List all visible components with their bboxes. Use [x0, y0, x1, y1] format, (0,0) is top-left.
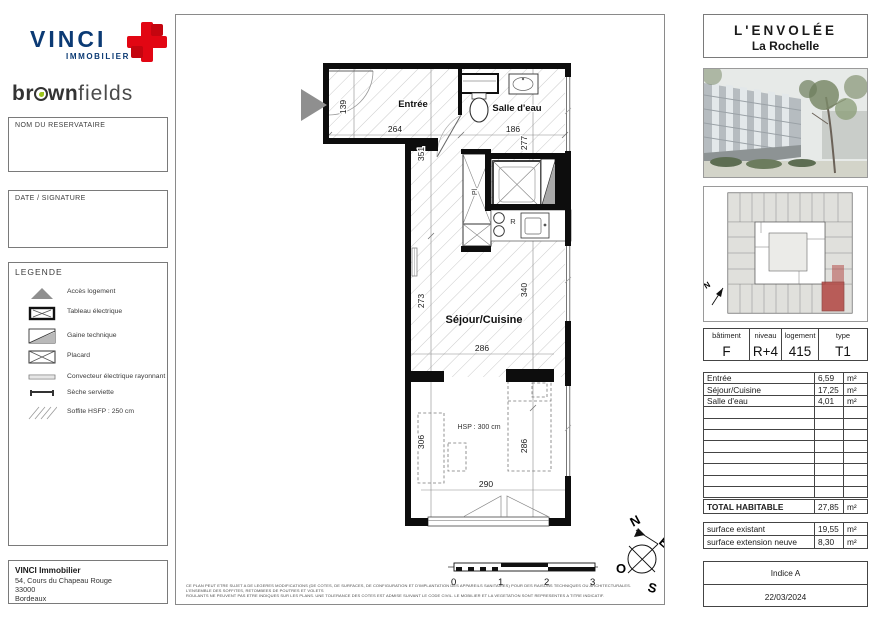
room-label-entree: Entrée: [398, 99, 428, 110]
dim-351: 351: [416, 147, 426, 161]
area-row-empty: [704, 430, 867, 441]
area-row-empty: [704, 476, 867, 487]
bed-outline: [508, 379, 551, 471]
surface-label: surface existant: [704, 523, 815, 535]
date-signature-label: DATE / SIGNATURE: [9, 191, 167, 202]
header-logement: logement: [782, 329, 819, 342]
reservataire-field[interactable]: NOM DU RESERVATAIRE: [8, 117, 168, 172]
area-row-empty: [704, 441, 867, 452]
header-type: type: [819, 329, 867, 342]
company-city: Bordeaux: [9, 594, 167, 603]
total-label: TOTAL HABITABLE: [704, 500, 815, 513]
area-label: Séjour/Cuisine: [704, 384, 815, 394]
vinci-cross-icon: [127, 20, 167, 64]
dim-264: 264: [388, 124, 402, 134]
area-value: 17,25: [815, 384, 844, 394]
pillow-outline: [532, 383, 547, 397]
header-batiment: bâtiment: [704, 329, 750, 342]
area-row-empty: [704, 453, 867, 464]
vinci-immobilier-logo: VINCI IMMOBILIER: [24, 14, 164, 64]
brownfields-logo: brwnfields: [12, 82, 168, 110]
area-unit: m²: [844, 384, 867, 394]
appliance-box: [463, 224, 491, 246]
brownfields-text-fields: fields: [78, 82, 133, 105]
chair-outline: [448, 443, 466, 471]
company-name: VINCI Immobilier: [9, 561, 167, 576]
bay-window: [428, 496, 549, 526]
legend-item-tableau: Tableau électrique: [23, 305, 169, 323]
dim-273: 273: [416, 294, 426, 308]
area-unit: m²: [844, 396, 867, 406]
building-render-image: [704, 69, 867, 177]
revision-indice: Indice A: [704, 562, 867, 585]
legend-label: Placard: [67, 352, 90, 359]
area-label: Salle d'eau: [704, 396, 815, 406]
surfaces-table: surface existant 19,55 m² surface extens…: [703, 522, 868, 549]
project-city: La Rochelle: [704, 39, 867, 53]
acces-logement-icon: [27, 285, 57, 301]
area-unit: m²: [844, 373, 867, 383]
room-areas-table: Entrée 6,59 m² Séjour/Cuisine 17,25 m² S…: [703, 372, 868, 498]
surface-value: 8,30: [815, 536, 844, 548]
annotation-placard: Pl: [472, 188, 479, 195]
gaine-technique-icon: [27, 327, 57, 345]
placard-icon: [27, 349, 57, 365]
hob-burner: [494, 213, 505, 224]
value-niveau: R+4: [750, 342, 782, 361]
area-row-entree: Entrée 6,59 m²: [704, 373, 867, 384]
legend-item-soffite: Soffite HSFP : 250 cm: [23, 405, 169, 423]
legend-label: Soffite HSFP : 250 cm: [67, 408, 134, 415]
room-label-salle-deau: Salle d'eau: [492, 103, 541, 114]
area-row-empty: [704, 419, 867, 430]
area-value: 4,01: [815, 396, 844, 406]
value-batiment: F: [704, 342, 750, 361]
plan-sheet-page: VINCI IMMOBILIER brwnfields NOM DU RESER…: [0, 0, 876, 620]
project-title-block: L'ENVOLÉE La Rochelle: [703, 14, 868, 58]
disclaimer-line1: CE PLAN PEUT ETRE SUJET A DE LEGERES MOD…: [186, 583, 658, 593]
dim-286-sejour: 286: [475, 343, 489, 353]
highlighted-unit-extension: [832, 265, 844, 282]
area-row-sejour: Séjour/Cuisine 17,25 m²: [704, 384, 867, 395]
revision-block: Indice A 22/03/2024: [703, 561, 868, 607]
vinci-logo-subtext: IMMOBILIER: [66, 52, 130, 61]
dim-186: 186: [506, 124, 520, 134]
kitchen-counter: [491, 210, 571, 241]
right-wall-windows: [565, 77, 571, 476]
brownfields-text-wn: wn: [48, 82, 78, 105]
convecteur-icon: [27, 371, 57, 383]
surface-unit: m²: [844, 523, 867, 535]
legend-panel: LEGENDE Accès logement Tableau électriqu…: [8, 262, 168, 546]
legend-item-placard: Placard: [23, 349, 169, 367]
disclaimer-line2: ROULANTS NE PEUVENT PAS ETRE INDIQUES SU…: [186, 593, 658, 598]
toilet-bowl: [470, 98, 488, 122]
compass-n: N: [627, 515, 642, 530]
annotation-hsp: HSP : 300 cm: [457, 424, 500, 431]
legend-title: LEGENDE: [9, 263, 167, 277]
legend-item-gaine: Gaine technique: [23, 327, 169, 345]
total-habitable-row: TOTAL HABITABLE 27,85 m²: [703, 499, 868, 514]
highlighted-unit: [822, 282, 844, 311]
area-row-salle-deau: Salle d'eau 4,01 m²: [704, 396, 867, 407]
company-address: 54, Cours du Chapeau Rouge: [9, 576, 167, 585]
room-label-sejour-cuisine: Séjour/Cuisine: [445, 314, 522, 326]
area-label: Entrée: [704, 373, 815, 383]
compass-e: E: [656, 534, 664, 551]
legend-label: Accès logement: [67, 288, 115, 295]
key-plan: N: [703, 186, 868, 322]
scale-bar-graphic: [448, 557, 603, 577]
drawing-sheet: Entrée Salle d'eau Séjour/Cuisine HSP : …: [175, 14, 665, 605]
header-niveau: niveau: [750, 329, 782, 342]
brownfields-text-br: br: [12, 82, 34, 105]
area-row-empty: [704, 407, 867, 418]
surface-existant-row: surface existant 19,55 m²: [704, 523, 867, 536]
total-value: 27,85: [815, 500, 844, 513]
tableau-electrique-icon: [27, 305, 57, 321]
unit-id-table: bâtiment niveau logement type F R+4 415 …: [703, 328, 868, 361]
floor-plan-drawing: Entrée Salle d'eau Séjour/Cuisine HSP : …: [176, 15, 664, 575]
dim-139: 139: [338, 100, 348, 114]
company-address-block: VINCI Immobilier 54, Cours du Chapeau Ro…: [8, 560, 168, 604]
dim-290: 290: [479, 479, 493, 489]
brownfields-o-leaf-icon: [34, 87, 48, 101]
company-postcode: 33000: [9, 585, 167, 594]
key-plan-drawing: N: [704, 187, 867, 321]
value-type: T1: [819, 342, 867, 361]
legend-item-acces: Accès logement: [23, 285, 169, 303]
hob-burner: [494, 226, 505, 237]
legend-label: Tableau électrique: [67, 308, 122, 315]
surface-unit: m²: [844, 536, 867, 548]
soffite-icon: [27, 405, 57, 421]
annotation-repere: R: [510, 217, 516, 226]
reservataire-label: NOM DU RESERVATAIRE: [9, 118, 167, 129]
area-row-empty: [704, 464, 867, 475]
dim-306: 306: [416, 435, 426, 449]
surface-label: surface extension neuve: [704, 536, 815, 548]
gaine-technique: [541, 159, 555, 208]
area-value: 6,59: [815, 373, 844, 383]
legend-label: Gaine technique: [67, 332, 117, 339]
wc-cistern: [461, 74, 498, 93]
revision-date: 22/03/2024: [704, 585, 867, 608]
dim-340: 340: [519, 283, 529, 297]
vinci-logo-text: VINCI: [30, 26, 106, 53]
surface-value: 19,55: [815, 523, 844, 535]
dim-286-chambre: 286: [519, 439, 529, 453]
dim-277: 277: [519, 136, 529, 150]
disclaimer-text: CE PLAN PEUT ETRE SUJET A DE LEGERES MOD…: [186, 583, 658, 598]
legend-label: Convecteur électrique rayonnant: [67, 373, 165, 380]
seche-serviette-icon: [27, 387, 57, 399]
surface-extension-row: surface extension neuve 8,30 m²: [704, 536, 867, 549]
project-name: L'ENVOLÉE: [704, 23, 867, 38]
project-photo: [703, 68, 868, 178]
compass-o: O: [616, 561, 626, 576]
legend-label: Sèche serviette: [67, 389, 114, 396]
value-logement: 415: [782, 342, 819, 361]
date-signature-field[interactable]: DATE / SIGNATURE: [8, 190, 168, 248]
total-unit: m²: [844, 500, 867, 513]
area-row-empty: [704, 487, 867, 498]
legend-item-seche: Sèche serviette: [23, 387, 169, 405]
